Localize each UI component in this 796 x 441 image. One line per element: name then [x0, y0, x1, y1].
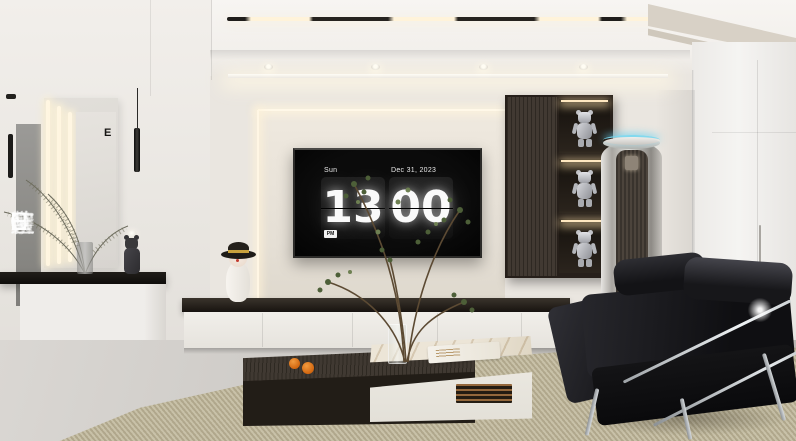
living-room-scene: E — [0, 0, 796, 441]
mirror-logo-mark: E — [104, 126, 118, 140]
half-wall-partition — [20, 284, 166, 348]
led-strip-top — [258, 109, 505, 111]
ceiling-spotlight — [371, 64, 380, 70]
doll-figurine-body — [226, 262, 250, 302]
ceiling-soffit — [210, 50, 690, 60]
wardrobe-seam — [712, 132, 796, 133]
ceiling-spotlight — [479, 64, 488, 70]
bearbrick-figure — [574, 170, 596, 210]
light-glint — [746, 296, 774, 324]
sofa-cushion — [683, 256, 794, 305]
linear-track-light — [227, 17, 656, 21]
ac-display — [625, 156, 638, 170]
vase — [77, 242, 93, 274]
ac-blue-ring — [603, 135, 660, 145]
branch-plant — [258, 132, 488, 364]
ceiling-spotlight — [579, 64, 588, 70]
ceiling-spotlight-left — [6, 94, 16, 99]
niche-light — [561, 100, 608, 102]
sofa — [556, 248, 796, 441]
pendant-cord — [137, 88, 138, 130]
table-wood-niche — [456, 384, 512, 403]
ceiling-spotlight — [264, 64, 273, 70]
bearbrick-figure — [574, 110, 596, 150]
doll-hat-band — [228, 250, 249, 253]
cove-light — [228, 74, 668, 78]
bear-figurine — [124, 248, 140, 274]
wall-beam-edge-2 — [211, 0, 212, 80]
doll-mouth — [236, 259, 239, 262]
cabinet-door — [507, 97, 557, 276]
wall-beam-edge — [150, 0, 151, 96]
